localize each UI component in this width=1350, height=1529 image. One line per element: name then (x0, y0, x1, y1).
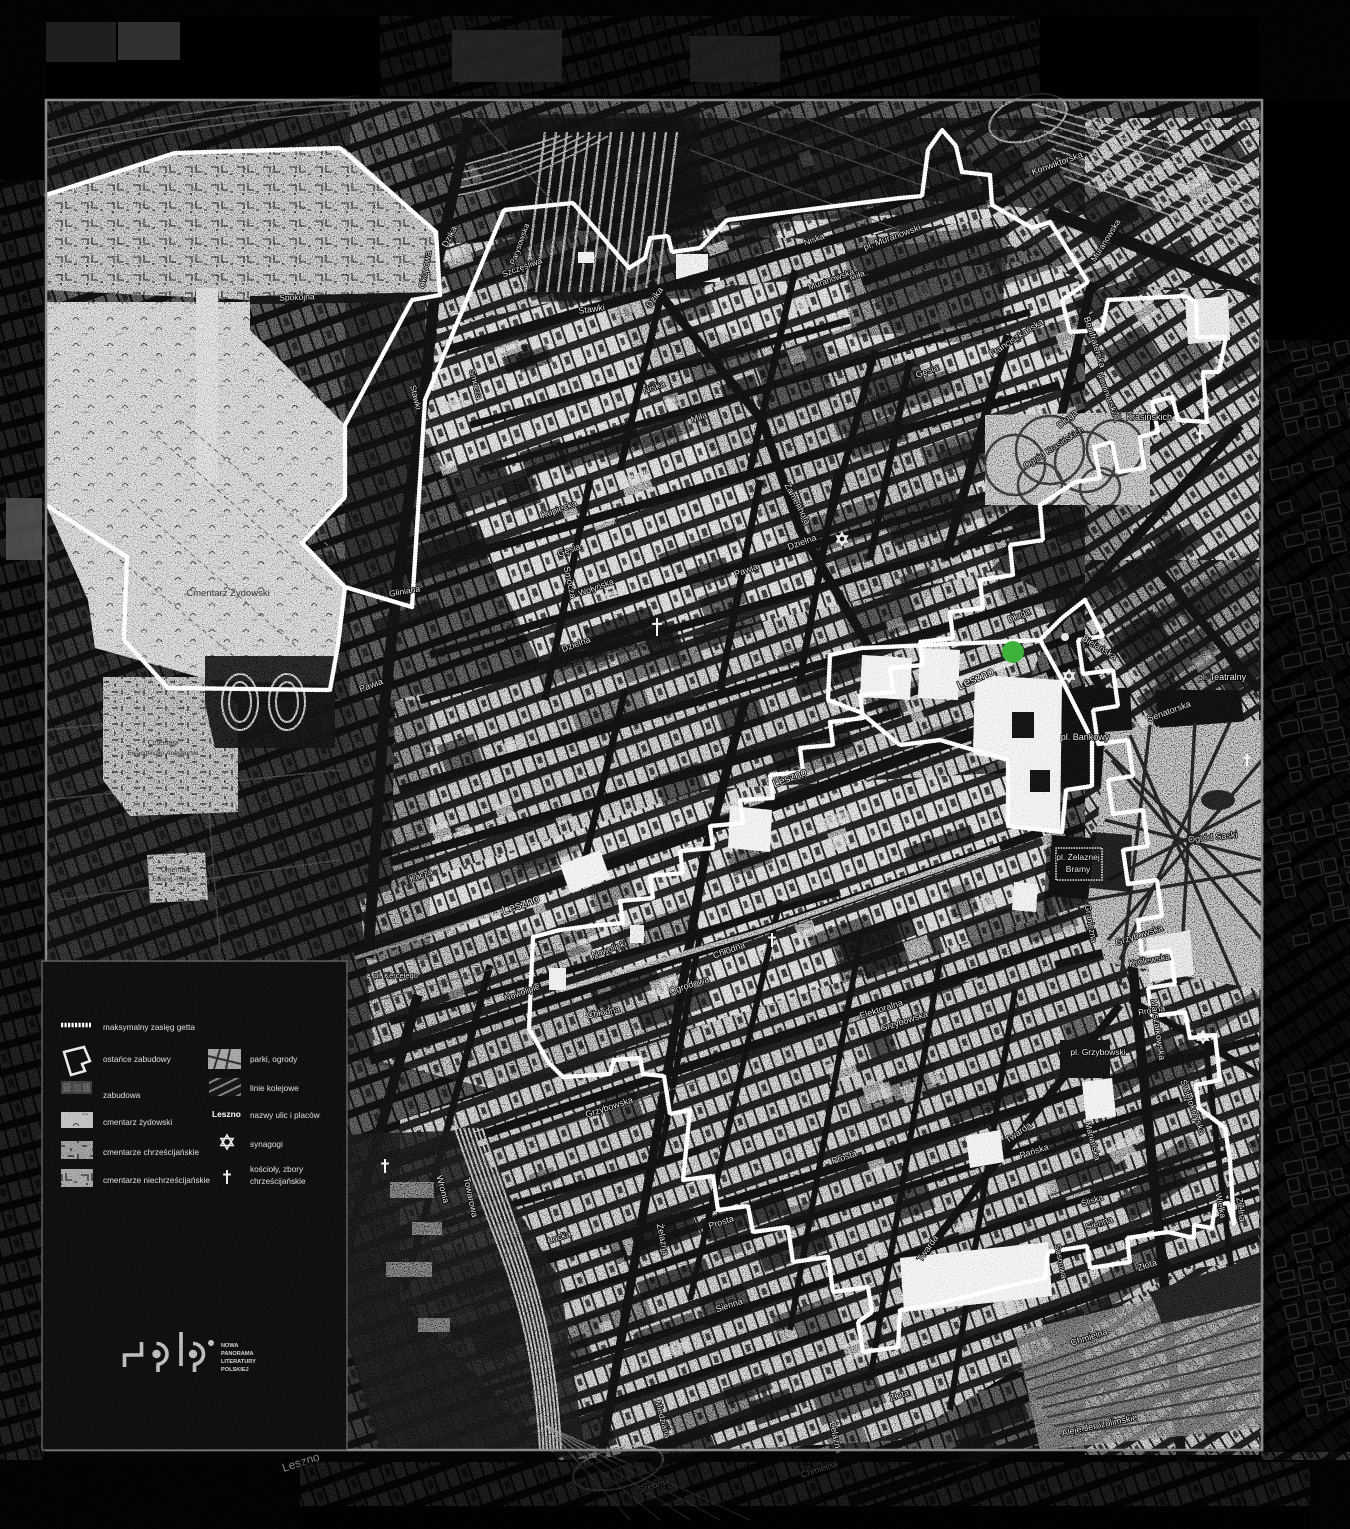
svg-text:pl. Grzybowski: pl. Grzybowski (1070, 1047, 1125, 1057)
svg-text:pl. Kercelego: pl. Kercelego (374, 971, 418, 980)
svg-text:pl. Bankowy: pl. Bankowy (1061, 732, 1110, 742)
svg-text:Ewangelicko-Augsburski: Ewangelicko-Augsburski (128, 750, 199, 757)
svg-text:pl. Żelaznej: pl. Żelaznej (1056, 852, 1100, 862)
svg-text:Spokojna: Spokojna (279, 291, 315, 302)
svg-text:Bramy: Bramy (1066, 864, 1091, 874)
svg-text:Ewang.-Reform.: Ewang.-Reform. (153, 876, 200, 883)
svg-text:Cmentarz Żydowski: Cmentarz Żydowski (186, 588, 269, 599)
svg-text:pl. Teatralny: pl. Teatralny (1198, 672, 1247, 682)
svg-text:pl. Krasińskich: pl. Krasińskich (1114, 412, 1172, 422)
svg-text:Cmentarz: Cmentarz (161, 867, 192, 874)
svg-text:Cmentarz: Cmentarz (148, 740, 179, 747)
